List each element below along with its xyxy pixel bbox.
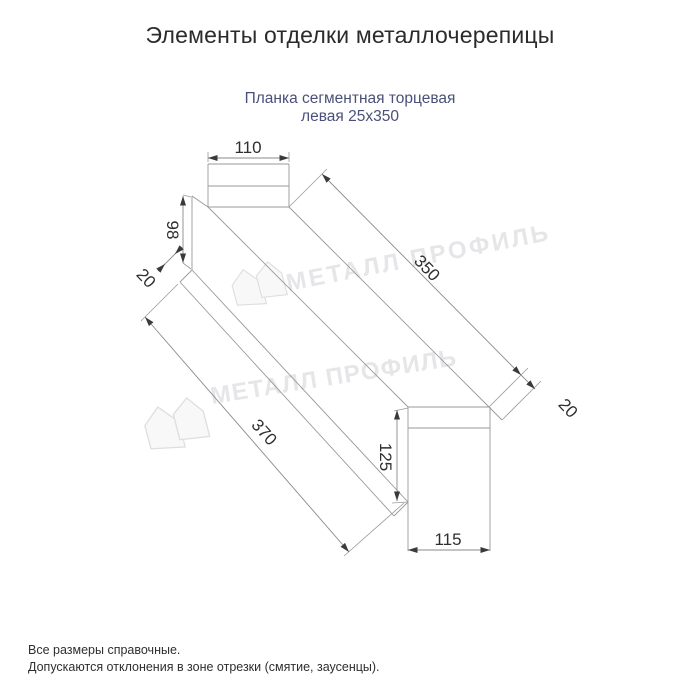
dimension-label-98: 98 xyxy=(163,221,182,240)
dimension-label-110: 110 xyxy=(234,138,261,157)
watermark-upper: МЕТАЛЛ ПРОФИЛЬ xyxy=(229,219,552,309)
dimension-left-hem: 20 xyxy=(133,247,182,292)
footnotes: Все размеры справочные. Допускаются откл… xyxy=(28,642,380,676)
dimension-left-height: 98 xyxy=(163,195,191,269)
profile-near-end xyxy=(180,164,289,282)
dimension-label-20-left: 20 xyxy=(133,265,160,292)
dimension-top-width: 110 xyxy=(208,138,289,162)
drawing-page: Элементы отделки металлочерепицы Планка … xyxy=(0,0,700,700)
footnote-line2: Допускаются отклонения в зоне отрезки (с… xyxy=(28,659,380,676)
dimension-bottom-width: 115 xyxy=(408,530,490,550)
technical-drawing: МЕТАЛЛ ПРОФИЛЬ МЕТАЛЛ ПРОФИЛЬ xyxy=(0,0,700,700)
dimension-label-125: 125 xyxy=(376,443,395,471)
dimension-right-height: 125 xyxy=(376,408,408,503)
metall-profil-logo-icon xyxy=(141,395,210,453)
dimension-label-370: 370 xyxy=(248,415,281,449)
dimension-label-115: 115 xyxy=(434,530,461,549)
footnote-line1: Все размеры справочные. xyxy=(28,642,380,659)
dimension-label-20-right: 20 xyxy=(555,395,582,422)
watermark-lower: МЕТАЛЛ ПРОФИЛЬ xyxy=(141,344,459,453)
metall-profil-logo-icon xyxy=(229,260,288,309)
